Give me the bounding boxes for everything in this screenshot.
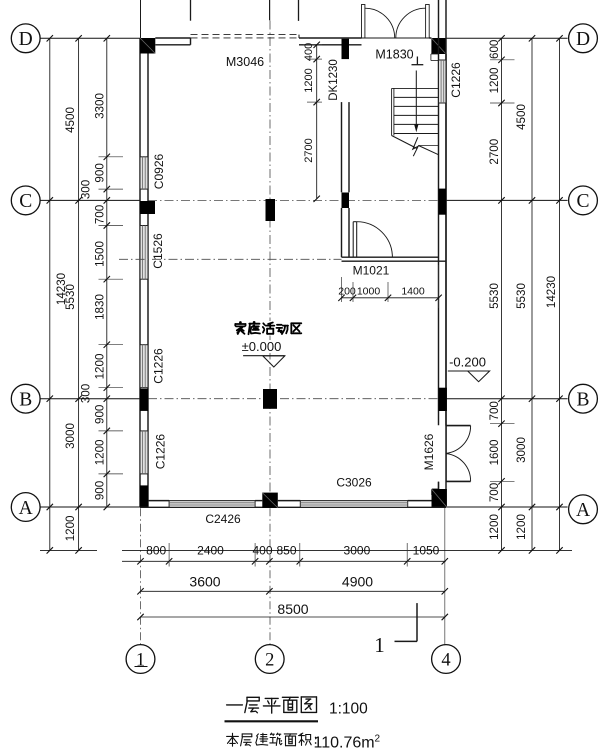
svg-text:5530: 5530 — [488, 283, 501, 309]
svg-text:900: 900 — [93, 481, 106, 500]
svg-text:M3046: M3046 — [226, 55, 264, 69]
svg-text:14230: 14230 — [55, 273, 68, 305]
svg-text:1: 1 — [136, 651, 145, 671]
svg-text:2700: 2700 — [488, 139, 501, 165]
svg-text:1600: 1600 — [488, 440, 501, 466]
svg-text:5530: 5530 — [515, 283, 528, 309]
svg-text:2700: 2700 — [303, 138, 315, 162]
svg-text:900: 900 — [93, 163, 106, 182]
svg-text:D: D — [576, 29, 590, 50]
svg-text:4: 4 — [441, 651, 450, 671]
svg-text:1200: 1200 — [93, 440, 106, 466]
svg-text:1000: 1000 — [357, 286, 381, 298]
svg-text:300: 300 — [79, 180, 92, 199]
svg-text:8500: 8500 — [277, 601, 308, 617]
svg-text:2: 2 — [375, 734, 381, 745]
svg-text:400: 400 — [303, 43, 315, 61]
svg-text:1500: 1500 — [93, 241, 106, 267]
svg-text:1200: 1200 — [488, 68, 501, 94]
svg-text:D: D — [19, 29, 33, 50]
svg-text:700: 700 — [93, 205, 106, 224]
svg-text:850: 850 — [276, 544, 296, 558]
svg-text:C1226: C1226 — [153, 434, 167, 470]
svg-text:3600: 3600 — [189, 573, 220, 589]
svg-text:110.76m: 110.76m — [314, 735, 375, 752]
svg-text:1200: 1200 — [515, 514, 528, 540]
svg-text:C1226: C1226 — [151, 348, 165, 384]
svg-text:C1526: C1526 — [151, 233, 165, 269]
svg-text:2400: 2400 — [197, 544, 224, 558]
svg-text:1200: 1200 — [303, 68, 315, 92]
svg-text:700: 700 — [488, 483, 501, 502]
svg-text:A: A — [576, 500, 590, 521]
svg-text:700: 700 — [488, 401, 501, 420]
svg-text:3000: 3000 — [344, 544, 371, 558]
svg-text:4500: 4500 — [515, 104, 528, 130]
svg-text:300: 300 — [79, 384, 92, 403]
svg-text:800: 800 — [146, 544, 166, 558]
svg-text:14230: 14230 — [545, 276, 558, 308]
svg-text:±0.000: ±0.000 — [242, 339, 282, 354]
svg-text:1: 1 — [374, 633, 385, 657]
svg-text:-0.200: -0.200 — [449, 355, 486, 370]
svg-text:1050: 1050 — [413, 544, 440, 558]
svg-text:1200: 1200 — [488, 514, 501, 540]
svg-text:1400: 1400 — [401, 286, 425, 298]
svg-text:C1226: C1226 — [449, 62, 463, 98]
svg-text:A: A — [19, 498, 33, 519]
svg-text:400: 400 — [252, 544, 272, 558]
svg-text:DK1230: DK1230 — [328, 59, 340, 101]
svg-text:4900: 4900 — [342, 573, 373, 589]
svg-text:M1626: M1626 — [422, 433, 436, 470]
svg-text:4500: 4500 — [64, 107, 77, 133]
svg-text:C3026: C3026 — [336, 476, 372, 490]
svg-text:B: B — [576, 390, 589, 411]
svg-text:3300: 3300 — [93, 93, 106, 119]
svg-text:1:100: 1:100 — [329, 701, 368, 718]
svg-text:2: 2 — [265, 651, 274, 671]
svg-text:900: 900 — [93, 405, 106, 424]
svg-text:1200: 1200 — [93, 354, 106, 380]
svg-text:200: 200 — [338, 286, 356, 298]
svg-text:M1021: M1021 — [353, 264, 390, 278]
svg-text:1830: 1830 — [93, 294, 106, 320]
svg-text:1200: 1200 — [64, 516, 77, 542]
svg-text:C0926: C0926 — [152, 154, 166, 190]
svg-text:3000: 3000 — [64, 423, 77, 449]
svg-text:M1830: M1830 — [375, 48, 413, 62]
svg-text:C2426: C2426 — [205, 512, 241, 526]
svg-text:3000: 3000 — [515, 437, 528, 463]
svg-text:C: C — [576, 191, 589, 212]
svg-text:C: C — [19, 191, 32, 212]
svg-text:B: B — [19, 390, 32, 411]
svg-text:600: 600 — [488, 40, 501, 59]
